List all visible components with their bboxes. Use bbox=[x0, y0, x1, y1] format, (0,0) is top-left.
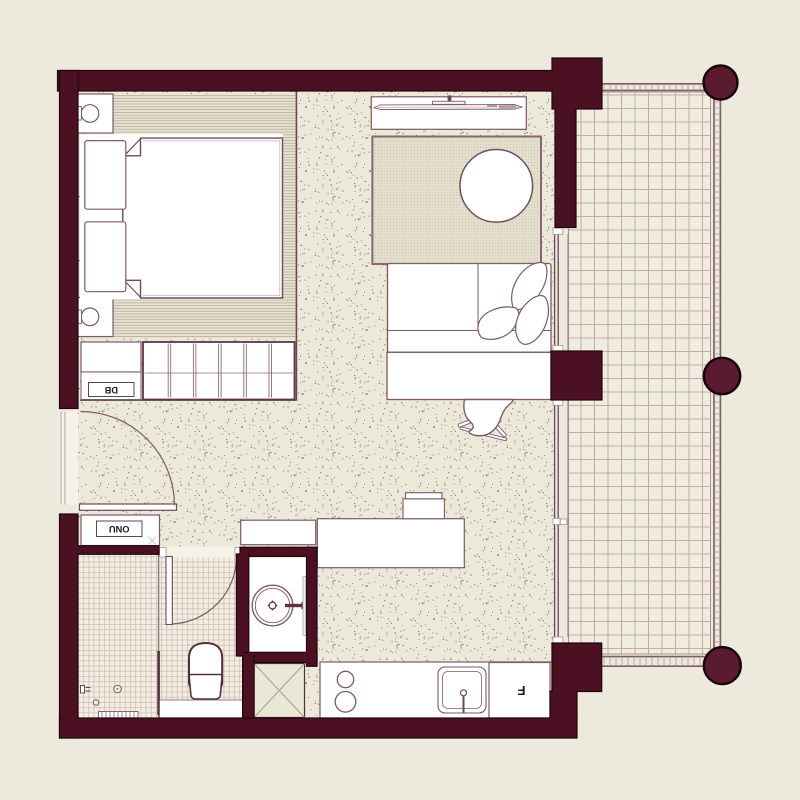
svg-text:F: F bbox=[517, 683, 525, 698]
svg-text:DB: DB bbox=[104, 385, 118, 395]
svg-text:ONU: ONU bbox=[109, 524, 130, 534]
